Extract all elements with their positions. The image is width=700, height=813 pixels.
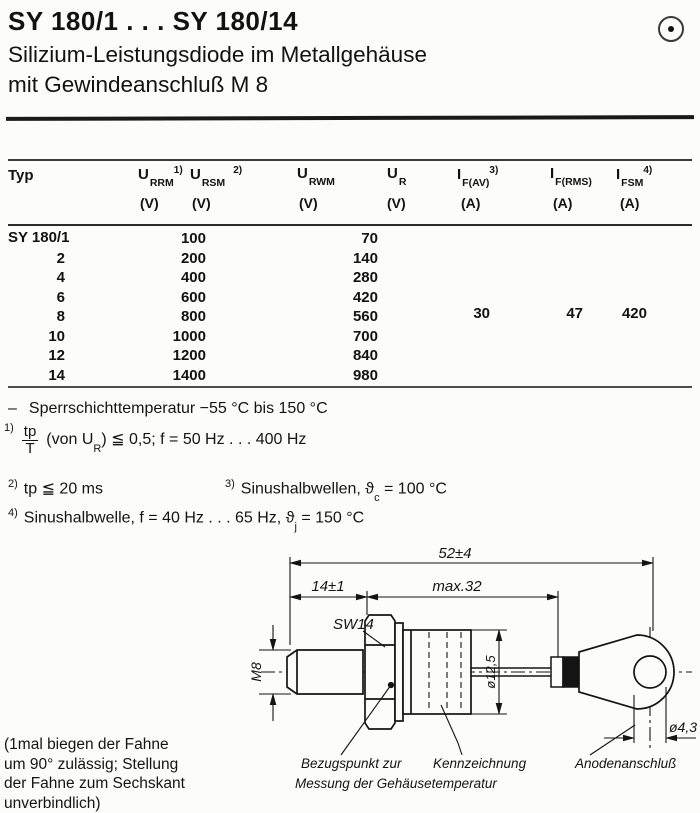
marking-label: Kennzeichnung (433, 756, 527, 771)
col-header-ur: UR (387, 165, 405, 185)
note-3: 3)Sinushalbwellen, ϑc = 100 °C (225, 478, 447, 501)
page-subtitle: Silizium-Leistungsdiode im Metallgehäuse… (8, 40, 427, 100)
subtitle-line-1: Silizium-Leistungsdiode im Metallgehäuse (8, 40, 427, 70)
tp-over-T-fraction: tpT (22, 424, 39, 457)
dim-overall-label: 52±4 (438, 545, 471, 562)
col-header-urrm: URRM1) (138, 165, 183, 186)
unit-ifav: (A) (461, 195, 480, 211)
note-4: 4)Sinushalbwelle, f = 40 Hz . . . 65 Hz,… (8, 507, 364, 530)
anode-label: Anodenanschluß (574, 756, 676, 771)
col-header-ifav: IF(AV)3) (457, 165, 498, 186)
unit-ursm: (V) (192, 195, 211, 211)
dim-body-label: max.32 (432, 578, 482, 595)
type-cell-first: SY 180/1 (8, 229, 69, 246)
note-junction-temp: –Sperrschichttemperatur −55 °C bis 150 °… (8, 400, 328, 418)
urrm-ursm-value-column: 100200400600800100012001400 (100, 229, 206, 385)
unit-urrm: (V) (140, 195, 159, 211)
ref-point-label-line1: Bezugspunkt zur (301, 756, 402, 771)
col-header-typ: Typ (8, 167, 34, 184)
table-header-rule (8, 224, 692, 226)
col-header-ursm: URSM2) (190, 165, 242, 186)
hole-dia-label: ø4,3 (669, 719, 697, 735)
unit-ur: (V) (387, 195, 406, 211)
thread-size-label: M8 (248, 662, 264, 682)
col-header-urwm: URWM (297, 165, 334, 185)
package-drawing: 52±4 14±1 max.32 SW14 M8 ø12,5 ø4,3 Bezu… (245, 545, 700, 808)
col-header-ifsm: IFSM4) (616, 165, 652, 186)
anode-flag (579, 635, 674, 709)
flag-bend-note: (1mal biegen der Fahneum 90° zulässig; S… (4, 735, 185, 813)
case-body (403, 630, 471, 714)
ifrms-value: 47 (551, 305, 583, 322)
unit-ifrms: (A) (553, 195, 572, 211)
table-bottom-rule (8, 386, 692, 388)
page-title: SY 180/1 . . . SY 180/14 (8, 6, 298, 37)
ref-point-label-line2: Messung der Gehäusetemperatur (295, 776, 497, 791)
note-2: 2)tp ≦ 20 ms (8, 478, 103, 498)
col-header-ifrms: IF(RMS) (550, 165, 591, 185)
urwm-ur-value-column: 70140280420560700840980 (270, 229, 378, 385)
unit-urwm: (V) (299, 195, 318, 211)
ifsm-value: 420 (614, 305, 647, 322)
dim-thread-label: 14±1 (311, 578, 344, 595)
type-column: 2468101214 (8, 249, 65, 386)
unit-ifsm: (A) (620, 195, 639, 211)
circle-dot-mark-icon (658, 16, 684, 42)
datasheet-page: { "page": { "title": "SY 180/1 . . . SY … (0, 0, 700, 808)
body-dia-label: ø12,5 (483, 655, 498, 689)
ifav-value: 30 (458, 305, 490, 322)
wrench-size-label: SW14 (333, 616, 374, 633)
table-top-rule (8, 159, 692, 161)
note-1: 1) tpT (von UR) ≦ 0,5; f = 50 Hz . . . 4… (4, 424, 306, 457)
subtitle-line-2: mit Gewindeanschluß M 8 (8, 70, 427, 100)
threaded-stud (287, 650, 363, 694)
crimp-sleeve (551, 657, 579, 687)
title-divider (6, 115, 694, 121)
